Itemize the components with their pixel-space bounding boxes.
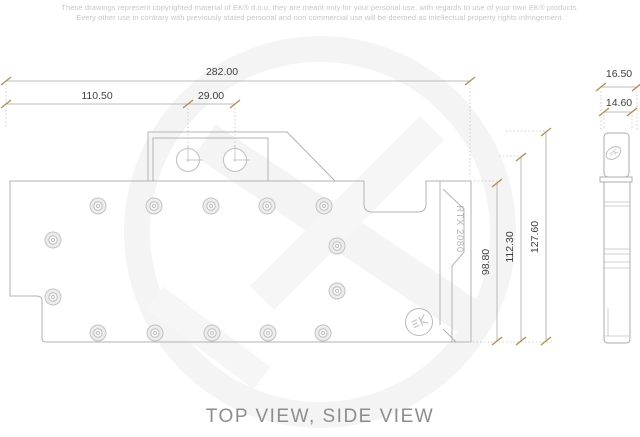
product-label: RTX 2080: [454, 205, 465, 252]
technical-drawing-page: { "disclaimer": { "line1": "These drawin…: [0, 0, 640, 437]
screw-hole: [260, 325, 276, 341]
screw-hole: [146, 198, 162, 214]
dim-total-width: 282.00: [206, 66, 238, 78]
view-title: TOP VIEW, SIDE VIEW: [0, 406, 640, 428]
screw-hole: [329, 238, 345, 254]
side-body-detail-lines: [604, 202, 630, 336]
dim-total-height: 127.60: [529, 221, 541, 253]
screw-hole: [203, 198, 219, 214]
dim-port-spacing: 29.00: [198, 90, 224, 102]
side-flange: [600, 177, 632, 182]
screw-hole: [45, 289, 61, 305]
screw-hole: [147, 325, 163, 341]
dim-mid-height: 112.30: [504, 231, 516, 262]
side-terminal: [604, 133, 629, 177]
dim-body-height: 98.80: [480, 249, 492, 275]
screw-hole: [90, 325, 106, 341]
screw-hole: [45, 232, 61, 248]
dim-side-inner-width: 14.60: [606, 97, 632, 109]
dim-side-outer-width: 16.50: [606, 68, 632, 80]
screw-hole: [204, 325, 220, 341]
technical-drawing-canvas: RTX 2080: [0, 0, 640, 437]
screw-hole: [90, 198, 106, 214]
screw-hole: [259, 198, 275, 214]
side-view: [600, 133, 632, 343]
ek-oval-badge-icon: [604, 144, 623, 162]
screw-hole: [329, 283, 345, 299]
ek-badge-icon: [406, 309, 433, 336]
dim-left-section-width: 110.50: [81, 90, 112, 102]
screw-hole: [315, 325, 331, 341]
screw-hole: [316, 198, 332, 214]
